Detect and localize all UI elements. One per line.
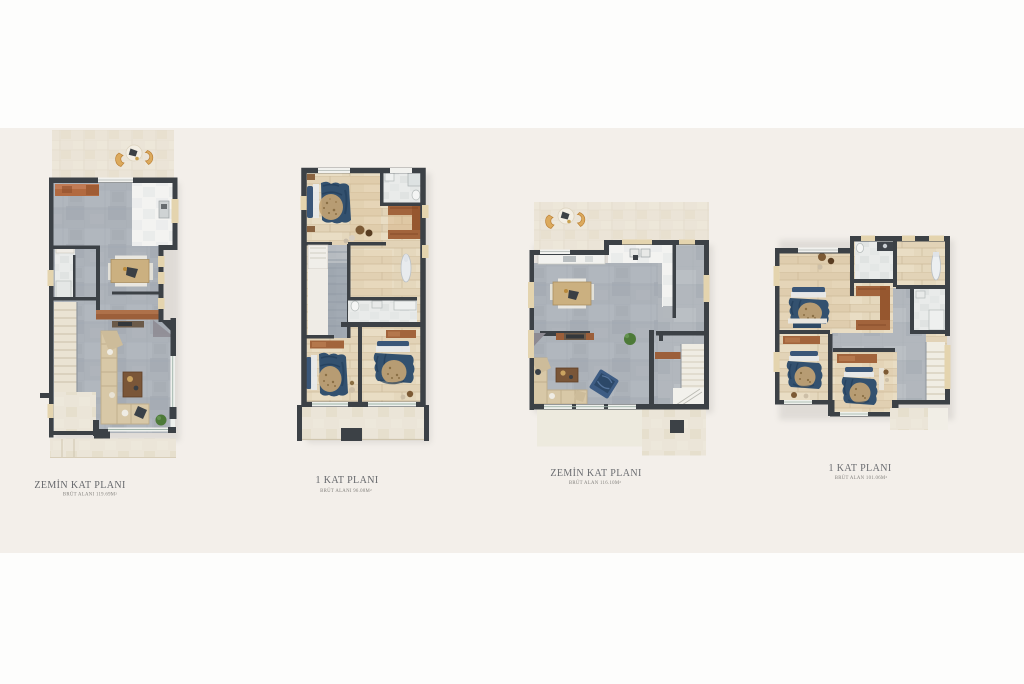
svg-text:1 KAT PLANI: 1 KAT PLANI xyxy=(315,475,378,486)
svg-text:ZEMİN KAT PLANI: ZEMİN KAT PLANI xyxy=(550,467,641,479)
svg-text:BRÜT ALAN 101.06M²: BRÜT ALAN 101.06M² xyxy=(835,475,888,481)
svg-text:BRÜT ALANI 119.69M²: BRÜT ALANI 119.69M² xyxy=(63,492,117,498)
svg-text:ZEMİN KAT PLANI: ZEMİN KAT PLANI xyxy=(34,479,125,491)
svg-text:BRÜT ALAN 116.10M²: BRÜT ALAN 116.10M² xyxy=(569,480,622,486)
svg-text:1 KAT PLANI: 1 KAT PLANI xyxy=(828,463,891,474)
svg-text:BRÜT ALANI 96.08M²: BRÜT ALANI 96.08M² xyxy=(320,488,372,494)
